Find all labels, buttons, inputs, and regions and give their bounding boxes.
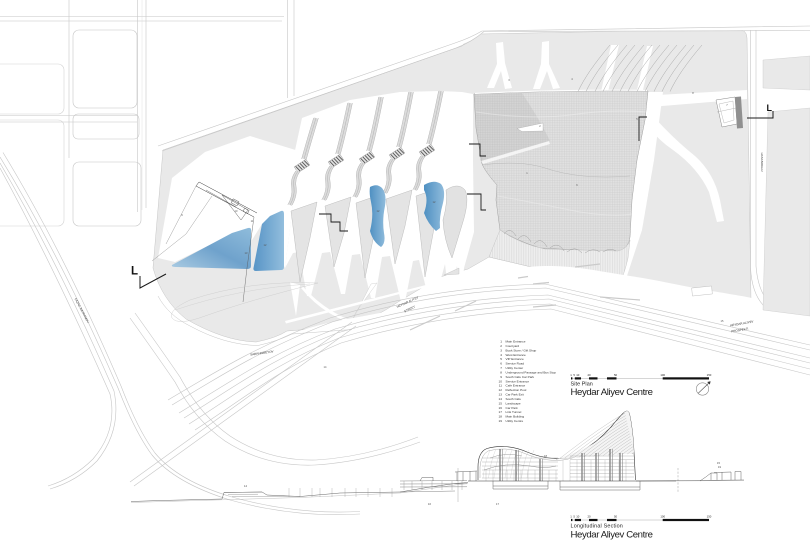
svg-text:15: 15 [499, 401, 503, 405]
svg-text:4: 4 [500, 353, 502, 357]
svg-text:Cafe Entrance: Cafe Entrance [506, 384, 526, 388]
svg-text:11: 11 [499, 384, 502, 388]
svg-text:9: 9 [500, 375, 502, 379]
svg-text:Car Park: Car Park [506, 406, 519, 410]
svg-text:South Cafe: South Cafe [506, 397, 522, 401]
svg-text:13: 13 [499, 393, 503, 397]
svg-text:Reflection Pool: Reflection Pool [506, 388, 527, 392]
svg-text:Car Park Exit: Car Park Exit [506, 393, 524, 397]
svg-text:14: 14 [499, 397, 503, 401]
svg-text:19: 19 [499, 419, 503, 423]
svg-text:Utility Center: Utility Center [506, 366, 524, 370]
svg-text:14: 14 [324, 365, 327, 369]
svg-text:Service Entrance: Service Entrance [506, 379, 530, 383]
svg-text:20: 20 [587, 515, 591, 519]
svg-text:L: L [767, 103, 773, 113]
svg-text:1: 1 [570, 373, 572, 377]
svg-text:Utility Centre: Utility Centre [506, 419, 524, 423]
svg-text:16: 16 [499, 406, 503, 410]
svg-text:19: 19 [718, 465, 721, 469]
svg-text:Heydar Aliyev Centre: Heydar Aliyev Centre [571, 529, 654, 540]
svg-text:6: 6 [500, 362, 502, 366]
svg-text:100: 100 [660, 373, 665, 377]
svg-text:South Cafe Car Park: South Cafe Car Park [506, 375, 535, 379]
svg-text:1: 1 [570, 515, 572, 519]
svg-text:1: 1 [500, 340, 502, 344]
svg-text:12: 12 [499, 388, 503, 392]
svg-text:150: 150 [707, 373, 712, 377]
svg-text:10: 10 [576, 515, 580, 519]
svg-text:West Entrance: West Entrance [506, 353, 527, 357]
svg-text:17: 17 [496, 502, 499, 506]
svg-text:Courtyard: Courtyard [506, 344, 520, 348]
svg-text:Underground Passage and Bus St: Underground Passage and Bus Stop [506, 370, 557, 374]
svg-text:5: 5 [573, 373, 575, 377]
svg-text:16: 16 [428, 502, 431, 506]
svg-text:17: 17 [499, 410, 503, 414]
svg-text:Service Road: Service Road [506, 362, 525, 366]
svg-text:150: 150 [707, 515, 712, 519]
svg-text:Landscape: Landscape [506, 401, 521, 405]
svg-text:8: 8 [500, 370, 502, 374]
svg-text:Main Building: Main Building [506, 415, 525, 419]
svg-text:10: 10 [576, 373, 580, 377]
svg-text:3: 3 [500, 348, 502, 352]
svg-text:Book Store / Gift Shop: Book Store / Gift Shop [506, 348, 537, 352]
svg-text:10: 10 [499, 379, 503, 383]
svg-text:5: 5 [573, 515, 575, 519]
svg-text:15: 15 [717, 461, 720, 465]
svg-text:Heydar Aliyev Centre: Heydar Aliyev Centre [571, 387, 654, 398]
svg-text:50: 50 [614, 373, 618, 377]
svg-text:2: 2 [500, 344, 502, 348]
svg-text:VIP Entrance: VIP Entrance [506, 357, 524, 361]
svg-text:14: 14 [244, 484, 247, 488]
svg-text:18: 18 [499, 415, 503, 419]
svg-text:100: 100 [660, 515, 665, 519]
svg-text:Main Entrance: Main Entrance [506, 340, 526, 344]
svg-text:5: 5 [500, 357, 502, 361]
svg-text:Link Tunnel: Link Tunnel [506, 410, 522, 414]
svg-text:HASANOGLU: HASANOGLU [760, 153, 764, 172]
svg-text:L: L [131, 266, 138, 278]
svg-text:50: 50 [614, 515, 618, 519]
svg-text:7: 7 [500, 366, 502, 370]
svg-text:20: 20 [587, 373, 591, 377]
